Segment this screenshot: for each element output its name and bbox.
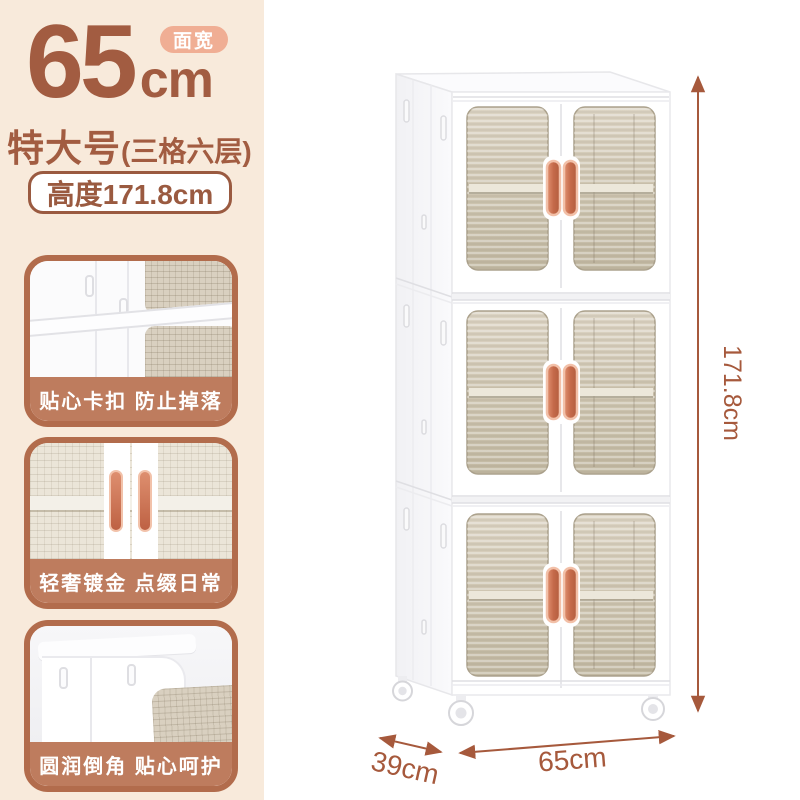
feature-card-corner-image bbox=[30, 626, 232, 742]
height-dimension-label: 171.8cm bbox=[718, 345, 746, 441]
product-infographic: 171.8cm 39cm 65cm 65 cm 面宽 特大号 (三格六层) 高度… bbox=[0, 0, 800, 800]
feature-caption: 贴心卡扣 防止掉落 bbox=[30, 377, 232, 421]
cabinet-unit-bottom bbox=[452, 506, 670, 688]
card-art-mesh-window bbox=[151, 685, 232, 742]
height-label-box: 高度171.8cm bbox=[28, 171, 232, 214]
card-art-slot bbox=[127, 664, 136, 686]
card-art-slot bbox=[59, 667, 68, 689]
door-handles bbox=[543, 360, 580, 424]
width-dimension-label: 65cm bbox=[537, 741, 608, 777]
width-headline-unit: cm bbox=[140, 50, 213, 110]
card-art-slot bbox=[85, 275, 94, 297]
width-headline-value: 65 bbox=[26, 10, 134, 114]
card-art-handle bbox=[109, 470, 123, 532]
info-panel: 65 cm 面宽 特大号 (三格六层) 高度171.8cm 贴 bbox=[0, 0, 264, 800]
feature-card-corner: 圆润倒角 贴心呵护 bbox=[24, 620, 238, 792]
cabinet-unit-top bbox=[453, 97, 669, 288]
card-art-mesh-window bbox=[145, 326, 232, 377]
size-subtitle: 特大号 (三格六层) bbox=[7, 118, 252, 172]
card-art-handle bbox=[138, 470, 152, 532]
door-handles bbox=[543, 156, 580, 220]
card-art-seam bbox=[90, 658, 92, 742]
feature-caption: 轻奢镀金 点缀日常 bbox=[30, 559, 232, 603]
feature-card-handles: 轻奢镀金 点缀日常 bbox=[24, 437, 238, 609]
depth-dimension-label: 39cm bbox=[368, 745, 442, 790]
card-art-doors bbox=[30, 443, 232, 559]
card-art-corner bbox=[30, 626, 232, 742]
feature-card-buckle-image bbox=[30, 261, 232, 377]
feature-card-buckle: 贴心卡扣 防止掉落 bbox=[24, 255, 238, 427]
size-name: 特大号 bbox=[7, 118, 121, 172]
feature-card-handles-image bbox=[30, 443, 232, 559]
cabinet-side-panel bbox=[396, 74, 452, 695]
door-handles bbox=[543, 563, 580, 627]
card-art-side-panel bbox=[30, 261, 232, 377]
feature-caption: 圆润倒角 贴心呵护 bbox=[30, 742, 232, 786]
face-width-badge: 面宽 bbox=[160, 26, 228, 53]
size-detail: (三格六层) bbox=[121, 130, 252, 170]
cabinet-unit-middle bbox=[453, 303, 669, 492]
card-art-shelf bbox=[30, 496, 232, 510]
